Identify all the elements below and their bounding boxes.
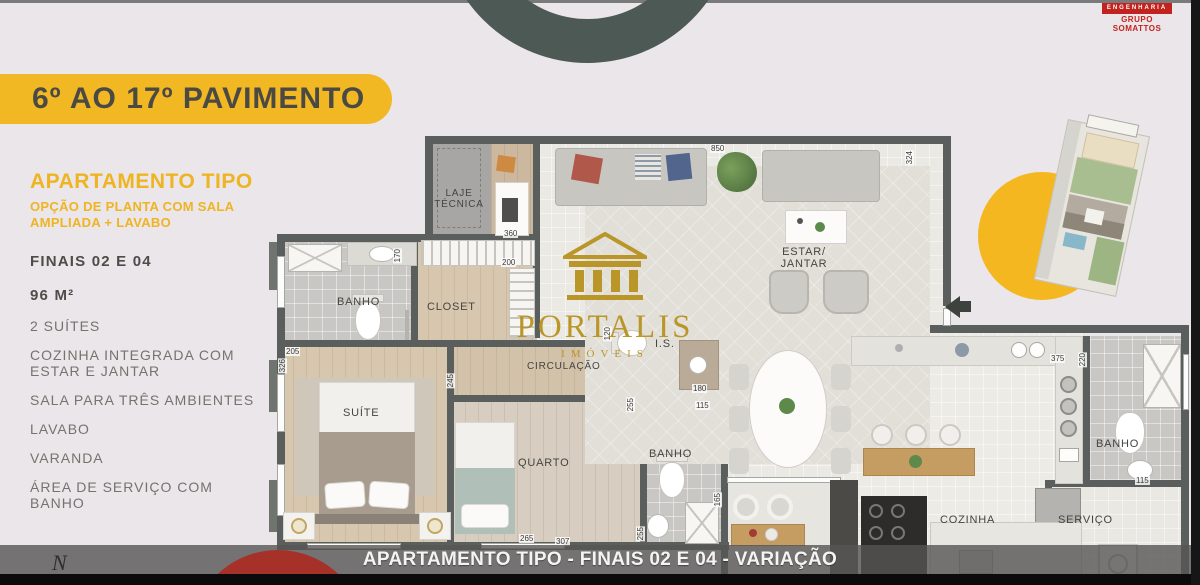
dim-245: 245 <box>446 373 455 388</box>
pillow <box>461 504 509 528</box>
kettle <box>955 343 969 357</box>
dim-115b: 115 <box>1135 476 1150 485</box>
table-plant <box>815 222 825 232</box>
stove-burner <box>869 504 883 518</box>
armchair <box>769 270 809 314</box>
window <box>1183 354 1189 410</box>
stool <box>871 424 893 446</box>
feature-item: VARANDA <box>30 450 270 466</box>
sink-small <box>1059 448 1079 462</box>
plant <box>717 152 757 192</box>
pillow <box>324 481 366 510</box>
dim-205: 205 <box>285 347 300 356</box>
brand-engenharia-badge: ENGENHARIA <box>1102 3 1172 14</box>
sofa-cushion-red <box>571 154 603 184</box>
feature-item: 2 SUÍTES <box>30 318 270 334</box>
dim-165: 165 <box>713 492 722 507</box>
dim-324: 324 <box>905 150 914 165</box>
label-estar-jantar: ESTAR/ JANTAR <box>773 246 835 270</box>
dim-265: 265 <box>519 534 534 543</box>
label-banho-servico: BANHO <box>1096 438 1139 450</box>
entrance-arrow-bar <box>959 301 971 312</box>
feature-item: COZINHA INTEGRADA COM ESTAR E JANTAR <box>30 347 270 379</box>
monitor <box>502 198 518 222</box>
label-suite: SUÍTE <box>343 407 379 419</box>
towel-bar <box>405 310 409 340</box>
lamp <box>427 518 443 534</box>
apartment-title: APARTAMENTO TIPO <box>30 170 280 194</box>
watermark-subtitle: IMÓVEIS <box>495 348 715 360</box>
wall-stub <box>269 242 277 290</box>
info-column: APARTAMENTO TIPO OPÇÃO DE PLANTA COM SAL… <box>30 170 280 524</box>
feature-item: SALA PARA TRÊS AMBIENTES <box>30 392 270 408</box>
pillow <box>368 481 410 510</box>
shower <box>288 244 342 272</box>
caption-text: APARTAMENTO TIPO - FINAIS 02 E 04 - VARI… <box>0 545 1200 574</box>
area-label: 96 M² <box>30 287 280 304</box>
toilet <box>659 462 685 498</box>
dim-375: 375 <box>1050 354 1065 363</box>
sink <box>369 246 395 262</box>
varanda-chair <box>767 494 793 520</box>
sofa-chaise <box>762 150 880 202</box>
brand-grupo-somattos: GRUPO SOMATTOS <box>1096 15 1178 33</box>
varanda-plate <box>765 528 778 541</box>
varanda-chair <box>733 494 759 520</box>
headboard <box>311 514 423 524</box>
apartment-subtitle: OPÇÃO DE PLANTA COM SALA AMPLIADA + LAVA… <box>30 199 275 231</box>
dining-chair <box>831 406 851 432</box>
right-border <box>1191 0 1200 585</box>
label-laje-tecnica: LAJE TÉCNICA <box>427 188 491 210</box>
wall-stub <box>269 360 277 412</box>
floor-range-banner: 6º AO 17º PAVIMENTO <box>0 74 392 124</box>
north-compass: N <box>52 550 67 576</box>
wall <box>943 136 951 306</box>
sink <box>647 514 669 538</box>
label-closet: CLOSET <box>427 301 476 313</box>
dim-180: 180 <box>692 384 707 393</box>
watermark-title: PORTALIS <box>495 309 715 346</box>
cooktop-burner <box>1060 398 1077 415</box>
finais-label: FINAIS 02 E 04 <box>30 253 280 270</box>
dim-255: 255 <box>626 397 635 412</box>
dining-centerpiece <box>779 398 795 414</box>
shower <box>1143 344 1181 408</box>
dim-850: 850 <box>710 144 725 153</box>
window <box>277 374 285 432</box>
caption-bar: APARTAMENTO TIPO - FINAIS 02 E 04 - VARI… <box>0 545 1200 574</box>
decorative-ring <box>440 0 735 63</box>
dim-220: 220 <box>1078 352 1087 367</box>
wall-stub <box>269 480 277 532</box>
cooktop-burner <box>1060 376 1077 393</box>
label-cozinha: COZINHA <box>940 514 995 526</box>
feature-item: ÁREA DE SERVIÇO COM BANHO <box>30 479 270 511</box>
sofa-cushion-navy <box>666 153 693 181</box>
window <box>277 464 285 516</box>
lamp <box>291 518 307 534</box>
table-deco <box>797 218 803 224</box>
sofa-cushion-waffle <box>635 154 661 180</box>
label-circulacao: CIRCULAÇÃO <box>527 361 601 372</box>
stove-burner <box>869 526 883 540</box>
glass-door-varanda <box>727 477 841 483</box>
dining-chair <box>831 364 851 390</box>
dining-chair <box>729 364 749 390</box>
varanda-deco-red <box>749 529 757 537</box>
dim-115a: 115 <box>695 401 710 410</box>
kitchen-sink <box>1011 342 1027 358</box>
shower <box>685 502 719 544</box>
kitchen-sink <box>1029 342 1045 358</box>
bottom-border <box>0 574 1200 585</box>
entrance-arrow-icon <box>934 296 960 318</box>
stool <box>905 424 927 446</box>
island-plant <box>909 455 922 468</box>
window <box>277 256 285 308</box>
wall <box>425 136 541 144</box>
watermark: PORTALIS IMÓVEIS <box>495 232 715 360</box>
armchair <box>823 270 869 314</box>
counter-deco <box>895 344 903 352</box>
dim-170: 170 <box>393 248 402 263</box>
label-servico: SERVIÇO <box>1058 514 1113 526</box>
flyer-page: ENGENHARIA GRUPO SOMATTOS 6º AO 17º PAVI… <box>0 0 1200 585</box>
label-banho-quarto: BANHO <box>649 448 692 460</box>
label-banho-suite: BANHO <box>337 296 380 308</box>
stove-burner <box>891 526 905 540</box>
cooktop-burner <box>1060 420 1077 437</box>
dim-326: 326 <box>278 358 287 373</box>
feature-item: LAVABO <box>30 421 270 437</box>
dining-chair <box>729 406 749 432</box>
floor-plan: LAJE TÉCNICA BANHO CLOSET SUÍTE QUARTO C… <box>255 130 1192 585</box>
dining-chair <box>831 448 851 474</box>
dim-255b: 255 <box>636 526 645 541</box>
stove-burner <box>891 504 905 518</box>
stool <box>939 424 961 446</box>
wall <box>537 136 951 144</box>
label-quarto: QUARTO <box>518 457 569 469</box>
dining-chair <box>729 448 749 474</box>
feature-list: 2 SUÍTES COZINHA INTEGRADA COM ESTAR E J… <box>30 318 280 511</box>
shelf-deco <box>496 155 516 173</box>
temple-icon <box>563 232 647 302</box>
